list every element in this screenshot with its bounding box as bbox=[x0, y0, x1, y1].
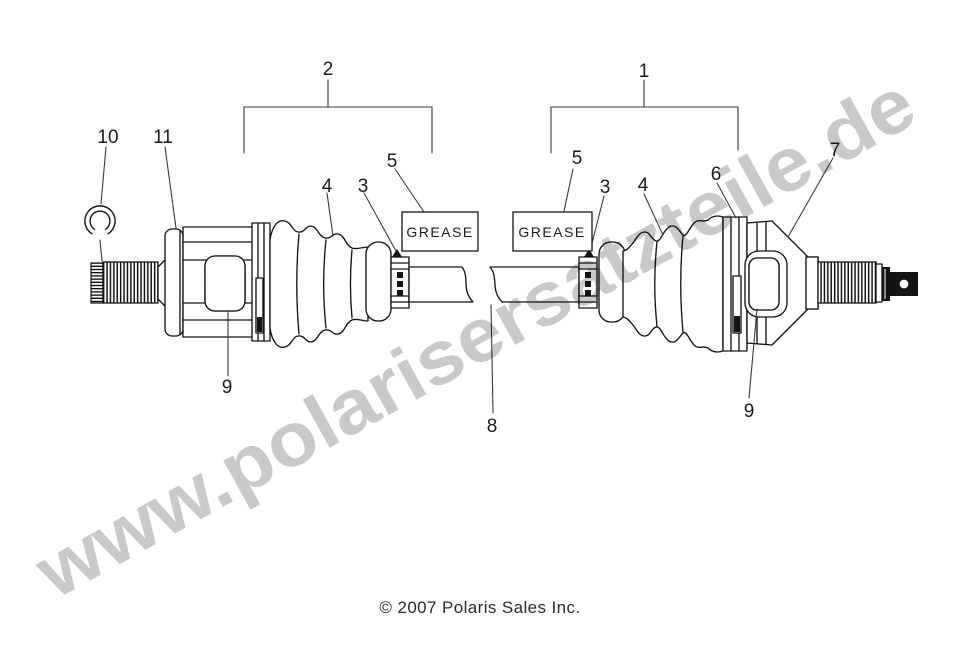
callout-8: 8 bbox=[487, 416, 498, 437]
callout-2: 2 bbox=[323, 59, 334, 80]
snap-ring-part bbox=[88, 208, 113, 231]
callout-3-left: 3 bbox=[358, 176, 369, 197]
inner-spline-stub bbox=[91, 259, 166, 307]
callout-9-right: 9 bbox=[744, 401, 755, 422]
callout-4-right: 4 bbox=[638, 175, 649, 196]
parts-diagram-page: GREASE GREASE 1 2 3 3 4 4 5 5 6 7 8 9 9 … bbox=[0, 0, 963, 648]
leader-5-right bbox=[564, 169, 573, 211]
copyright-text: © 2007 Polaris Sales Inc. bbox=[379, 598, 580, 617]
callout-9-left: 9 bbox=[222, 377, 233, 398]
callout-5-right: 5 bbox=[572, 148, 583, 169]
inner-bearing bbox=[205, 256, 245, 311]
inner-joint-assembly bbox=[88, 208, 410, 347]
grease-note-left: GREASE bbox=[402, 212, 478, 251]
grease-label-left: GREASE bbox=[406, 224, 473, 240]
bracket-2 bbox=[244, 107, 432, 153]
callout-1: 1 bbox=[639, 61, 650, 82]
callout-5-left: 5 bbox=[387, 151, 398, 172]
cv-axle-diagram: GREASE GREASE 1 2 3 3 4 4 5 5 6 7 8 9 9 … bbox=[0, 0, 963, 648]
callout-11: 11 bbox=[153, 127, 173, 148]
inner-boot-clamp bbox=[391, 249, 409, 308]
callout-4-left: 4 bbox=[322, 176, 333, 197]
callout-10: 10 bbox=[97, 127, 118, 148]
bracket-1 bbox=[551, 107, 738, 153]
callout-3-right: 3 bbox=[600, 177, 611, 198]
inner-boot bbox=[270, 221, 391, 348]
outer-spline-stub bbox=[806, 257, 918, 309]
inner-boot-flange bbox=[252, 223, 270, 341]
leader-11 bbox=[165, 147, 176, 228]
leader-10a bbox=[101, 147, 106, 204]
leader-4-left bbox=[327, 193, 333, 236]
outer-bearing bbox=[749, 258, 779, 310]
leader-10b bbox=[100, 240, 102, 261]
leader-5-left bbox=[395, 169, 424, 212]
